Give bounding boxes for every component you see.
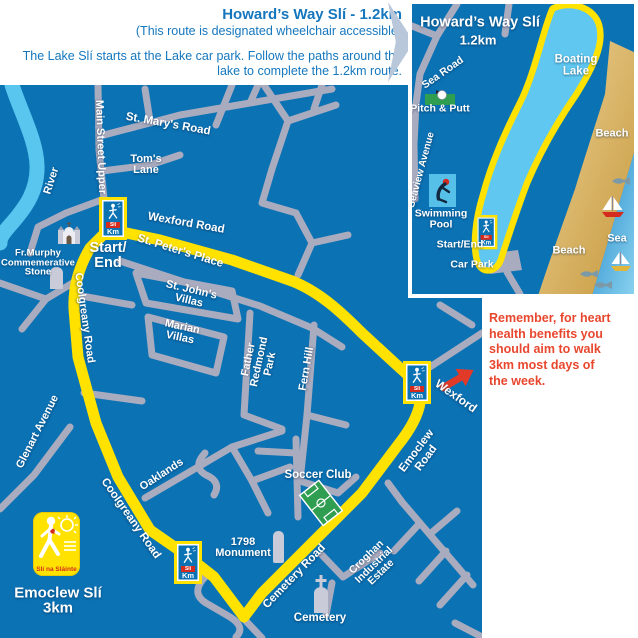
walking-figure-icon xyxy=(479,219,493,235)
header: Howard’s Way Slí - 1.2km (This route is … xyxy=(0,6,402,79)
monument-icon xyxy=(273,531,284,563)
swimming-pool-icon xyxy=(429,174,456,207)
fish-icon xyxy=(610,176,632,186)
route-description: The Lake Slí starts at the Lake car park… xyxy=(0,49,402,79)
inset-map-canvas xyxy=(412,4,634,294)
page-title: Howard’s Way Slí - 1.2km xyxy=(0,6,402,23)
commemorative-stone-icon xyxy=(50,267,63,289)
walking-figure-icon xyxy=(408,366,426,386)
page-subtitle: (This route is designated wheelchair acc… xyxy=(0,24,402,38)
walking-person-icon xyxy=(33,512,80,564)
sailboat-icon xyxy=(600,194,626,222)
pitch-putt-icon xyxy=(425,90,455,105)
marker-km-label: Km xyxy=(481,240,491,246)
marker-km-label: Km xyxy=(411,392,423,400)
fish-school-icon xyxy=(578,269,618,291)
leaflet-page: Howard’s Way Slí - 1.2km (This route is … xyxy=(0,0,638,638)
km-marker-inset: Slí Km xyxy=(475,215,497,249)
km-marker-start: Slí Km xyxy=(99,197,127,240)
marker-km-label: Km xyxy=(107,228,119,236)
marker-km-label: Km xyxy=(182,572,194,580)
sli-na-slainte-logo: Slí na Sláinte xyxy=(33,512,80,576)
health-note: Remember, for heart health benefits you … xyxy=(489,311,619,389)
cemetery-icon xyxy=(311,575,331,613)
walking-figure-icon xyxy=(104,202,122,222)
km-marker-east: Slí Km xyxy=(403,361,431,404)
inset-map: Slí Km Howard’s Way Slí 1.2km Sea Road P… xyxy=(408,0,638,298)
km-marker-south: Slí Km xyxy=(174,541,202,584)
river-shape xyxy=(0,85,37,243)
walking-figure-icon xyxy=(179,546,197,566)
church-icon xyxy=(54,219,84,245)
logo-text: Slí na Sláinte xyxy=(33,566,80,573)
